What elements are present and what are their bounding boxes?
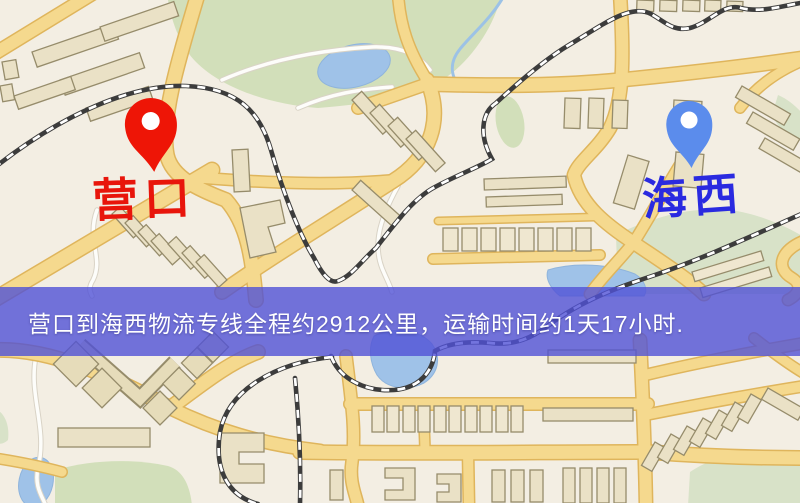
map-container: 营口 海西 营口到海西物流专线全程约2912公里，运输时间约1天17小时. — [0, 0, 800, 503]
map-canvas[interactable] — [0, 0, 800, 503]
destination-pin-icon[interactable] — [665, 100, 714, 169]
origin-label: 营口 — [91, 174, 197, 224]
destination-label: 海西 — [641, 170, 746, 222]
route-banner: 营口到海西物流专线全程约2912公里，运输时间约1天17小时. — [0, 287, 800, 356]
route-banner-text: 营口到海西物流专线全程约2912公里，运输时间约1天17小时. — [0, 305, 684, 339]
